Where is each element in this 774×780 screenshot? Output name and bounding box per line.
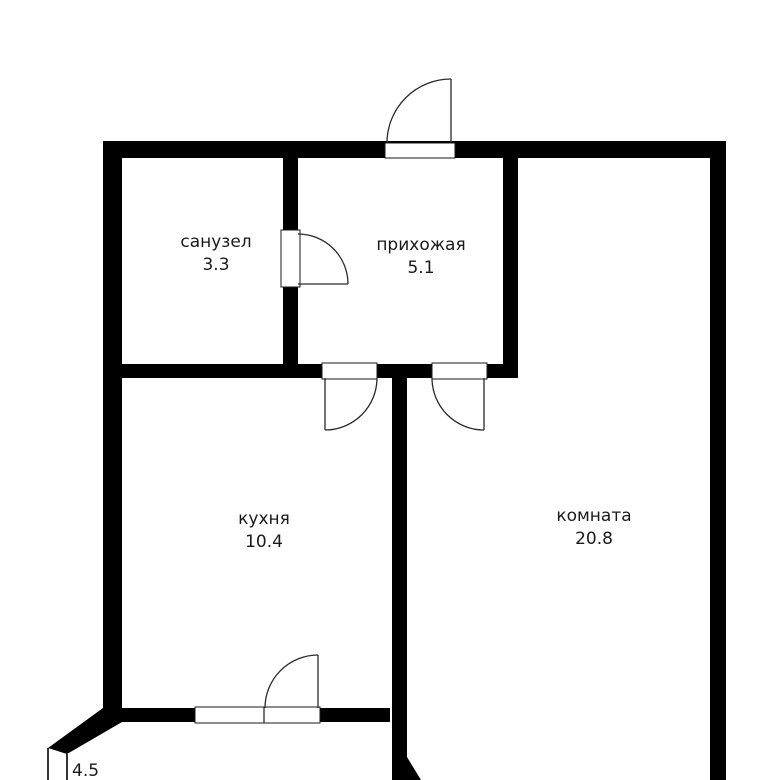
room-door-opening	[432, 363, 487, 379]
labels-layer: санузел3.3прихожая5.1кухня10.4комната20.…	[72, 232, 632, 780]
bath-door-swing-arc	[298, 234, 348, 284]
kitchen-door-opening	[322, 363, 377, 379]
wall-kitchen-room-wall	[392, 378, 407, 780]
kitchen-door-swing-arc	[325, 378, 377, 430]
wall-left-wall	[103, 141, 122, 708]
floorplan-canvas: санузел3.3прихожая5.1кухня10.4комната20.…	[0, 0, 774, 780]
wall-balcony-corner	[48, 708, 122, 754]
entrance-door-swing-arc	[387, 79, 451, 143]
room-label-prihozhaya: прихожая	[376, 235, 465, 255]
room-door-swing-arc	[432, 378, 484, 430]
room-area-balkon: 4.5	[72, 761, 99, 780]
room-area-sanuzel: 3.3	[202, 255, 229, 275]
room-area-komnata: 20.8	[575, 529, 613, 549]
wall-hall-room-wall	[503, 158, 518, 378]
room-label-kuhnya: кухня	[238, 509, 290, 529]
entrance-opening	[385, 143, 455, 158]
wall-right-wall	[710, 141, 726, 780]
kitchen-window-block	[195, 707, 320, 723]
floor-plan-svg: санузел3.3прихожая5.1кухня10.4комната20.…	[0, 0, 774, 780]
room-area-prihozhaya: 5.1	[407, 258, 434, 278]
room-area-kuhnya: 10.4	[245, 532, 283, 552]
balcony-door-swing-arc	[265, 655, 318, 708]
bath-door-opening	[281, 230, 300, 287]
room-label-sanuzel: санузел	[180, 232, 251, 252]
wall-divider-bottom-flare	[407, 757, 421, 780]
room-label-komnata: комната	[556, 506, 631, 526]
